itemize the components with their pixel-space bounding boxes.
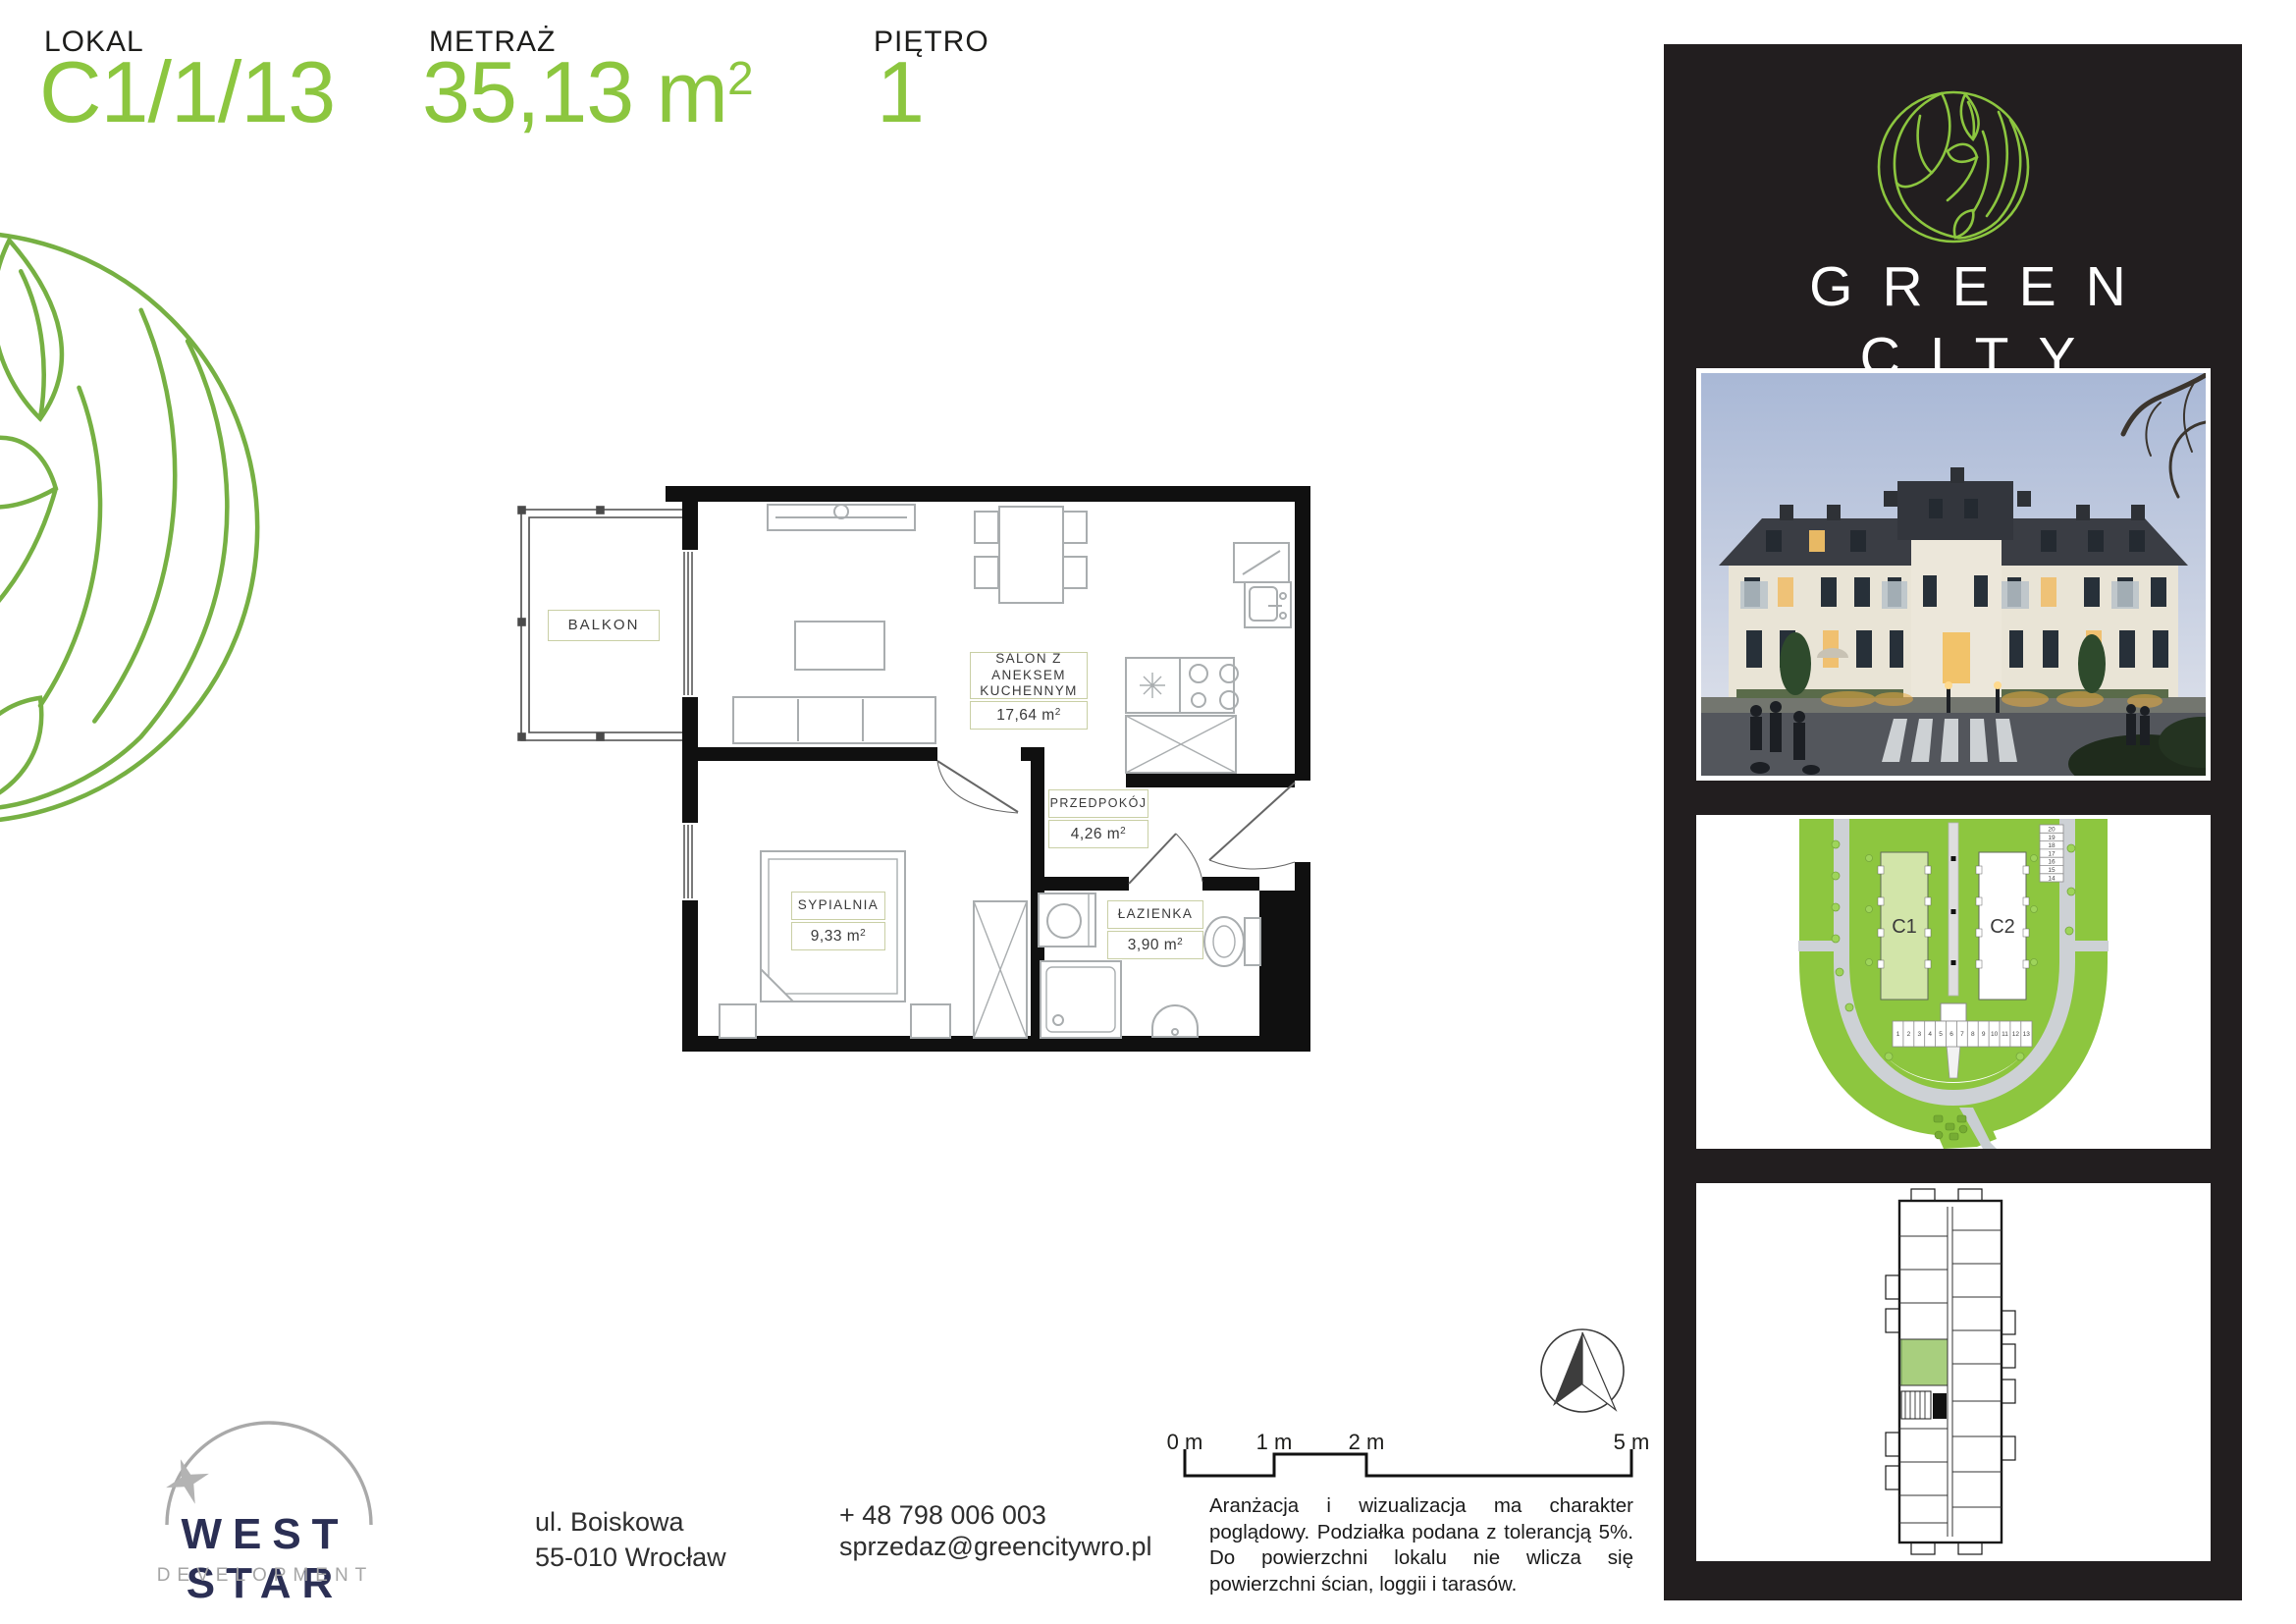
green-city-leaf-logo-icon — [1872, 85, 2035, 248]
contact-block: + 48 798 006 003 sprzedaz@greencitywro.p… — [839, 1500, 1152, 1563]
brand-sidebar: GREEN CITY — [1664, 44, 2242, 1600]
lokal-value: C1/1/13 — [39, 49, 335, 135]
parking-row-bottom: 1 2 3 4 5 6 7 8 9 10 11 12 13 — [1893, 1021, 2032, 1047]
svg-text:7: 7 — [1960, 1031, 1964, 1038]
disclaimer-text: Aranżacja i wizualizacja ma charakter po… — [1209, 1493, 1633, 1598]
svg-text:19: 19 — [2048, 835, 2056, 841]
svg-text:16: 16 — [2048, 859, 2056, 866]
stair-core — [1901, 1391, 1947, 1419]
svg-text:4: 4 — [1928, 1031, 1932, 1038]
svg-text:8: 8 — [1971, 1031, 1975, 1038]
svg-text:18: 18 — [2048, 842, 2056, 849]
parking-column-right: 20 19 18 17 16 15 14 — [2040, 825, 2063, 882]
svg-text:15: 15 — [2048, 867, 2056, 874]
floor-overview-inset — [1696, 1183, 2211, 1561]
building-photo-art — [1701, 373, 2206, 776]
svg-text:11: 11 — [2002, 1031, 2008, 1038]
phone-number: + 48 798 006 003 — [839, 1500, 1152, 1532]
brand-name-line1: GREEN — [1664, 252, 2271, 323]
svg-text:2: 2 — [1907, 1031, 1911, 1038]
svg-text:10: 10 — [1991, 1031, 1999, 1038]
address: ul. Boiskowa 55-010 Wrocław — [535, 1504, 726, 1576]
floor-overview-art — [1696, 1183, 2211, 1561]
pietro-value: 1 — [877, 49, 924, 135]
svg-text:6: 6 — [1949, 1031, 1953, 1038]
scale-bar-icon — [1178, 1447, 1649, 1481]
highlighted-unit — [1901, 1339, 1948, 1385]
site-plan-art: C1 C2 1 2 3 4 5 6 7 8 — [1696, 815, 2211, 1149]
metraz-value: 35,13 m2 — [422, 49, 753, 135]
leaf-ornament-icon — [0, 221, 270, 835]
svg-text:14: 14 — [2048, 875, 2056, 882]
building-photo — [1696, 368, 2211, 781]
svg-text:13: 13 — [2023, 1031, 2031, 1038]
svg-text:17: 17 — [2048, 850, 2056, 857]
site-plan-inset: C1 C2 1 2 3 4 5 6 7 8 — [1696, 815, 2211, 1149]
svg-text:20: 20 — [2048, 827, 2056, 834]
svg-text:5: 5 — [1939, 1031, 1943, 1038]
svg-text:C2: C2 — [1990, 916, 2015, 938]
svg-text:12: 12 — [2012, 1031, 2020, 1038]
email-address: sprzedaz@greencitywro.pl — [839, 1532, 1152, 1563]
svg-text:3: 3 — [1917, 1031, 1921, 1038]
svg-text:C1: C1 — [1892, 916, 1917, 938]
north-arrow-compass-icon — [1537, 1326, 1628, 1416]
svg-text:9: 9 — [1982, 1031, 1986, 1038]
furniture — [720, 505, 1291, 1038]
svg-text:1: 1 — [1896, 1031, 1900, 1038]
